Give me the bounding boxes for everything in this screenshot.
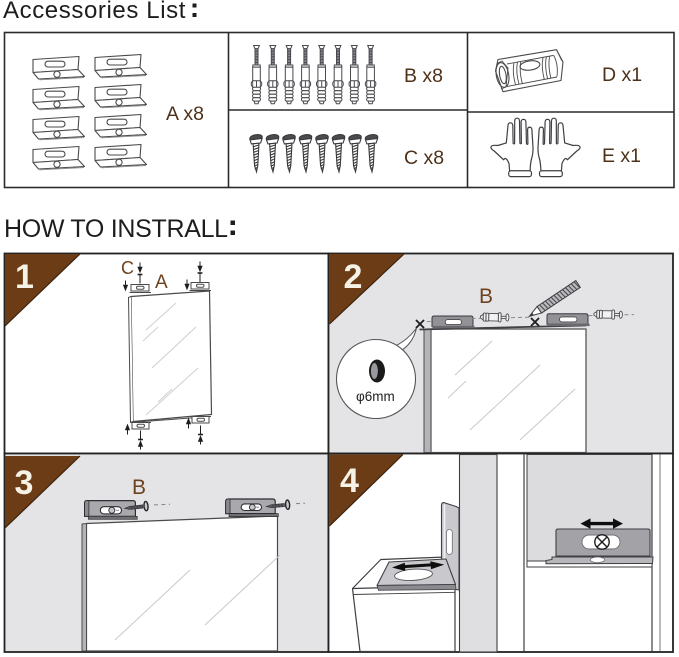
svg-text:B: B <box>132 476 146 499</box>
svg-text:φ6mm: φ6mm <box>356 389 395 404</box>
svg-text:C x8: C x8 <box>404 147 444 169</box>
svg-text:B: B <box>479 285 493 308</box>
svg-text:E x1: E x1 <box>602 145 641 167</box>
svg-text:4: 4 <box>340 462 359 500</box>
svg-text:C: C <box>121 258 134 278</box>
svg-text:3: 3 <box>15 464 34 502</box>
svg-text:1: 1 <box>15 258 34 296</box>
svg-text:Accessories List: Accessories List <box>3 0 186 24</box>
svg-text:HOW TO INSTRALL: HOW TO INSTRALL <box>4 215 228 243</box>
svg-text:2: 2 <box>344 258 363 296</box>
svg-text:A x8: A x8 <box>166 103 204 125</box>
svg-text:D x1: D x1 <box>602 64 642 86</box>
svg-text:A: A <box>155 272 168 293</box>
svg-text:B x8: B x8 <box>404 65 443 87</box>
